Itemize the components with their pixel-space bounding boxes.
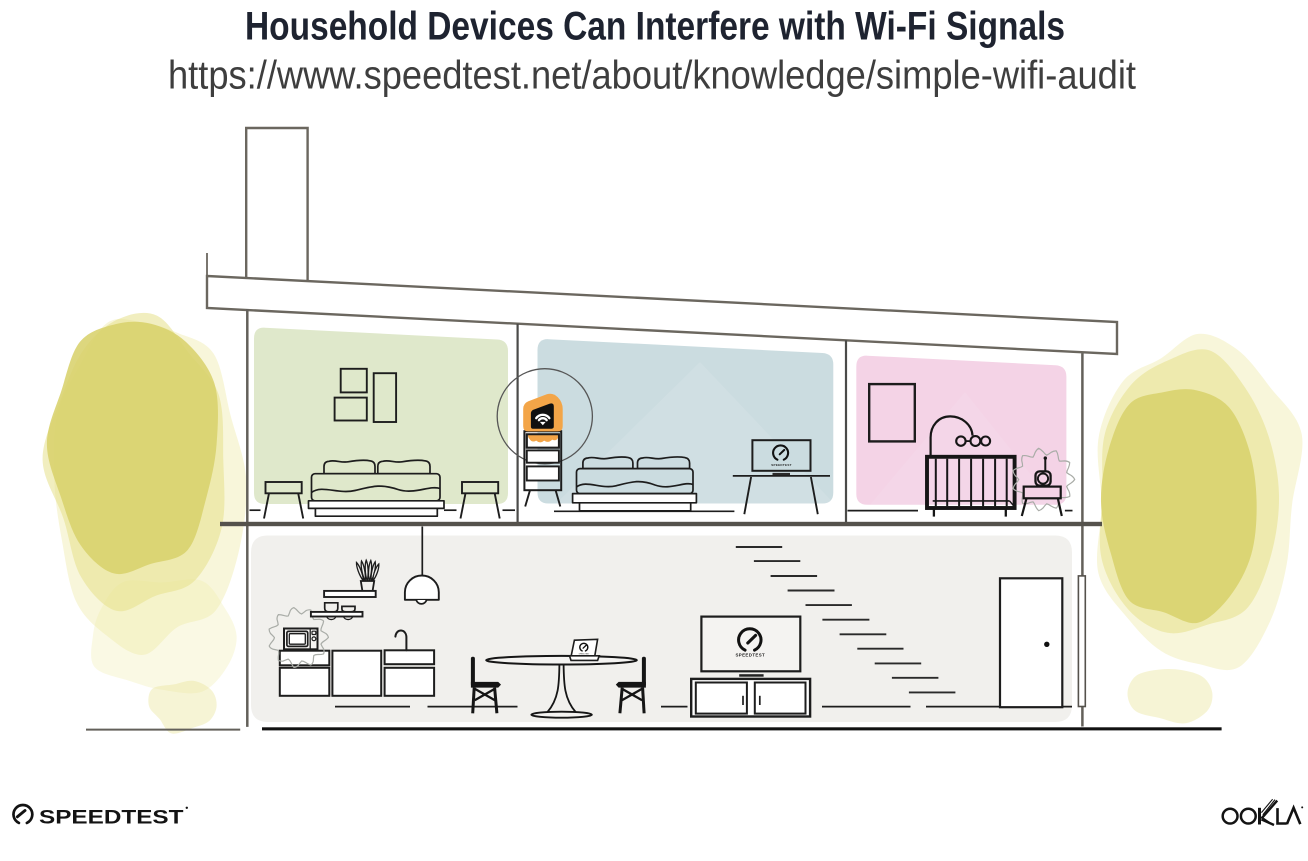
svg-text:https://www.speedtest.net/abou: https://www.speedtest.net/about/knowledg… xyxy=(168,54,1136,98)
svg-text:SPEEDTEST: SPEEDTEST xyxy=(39,806,184,828)
svg-text:SPEEDTEST: SPEEDTEST xyxy=(771,463,792,467)
svg-text:SPEEDTEST: SPEEDTEST xyxy=(735,653,765,658)
svg-text:Household Devices Can Interfer: Household Devices Can Interfere with Wi-… xyxy=(245,5,1065,49)
